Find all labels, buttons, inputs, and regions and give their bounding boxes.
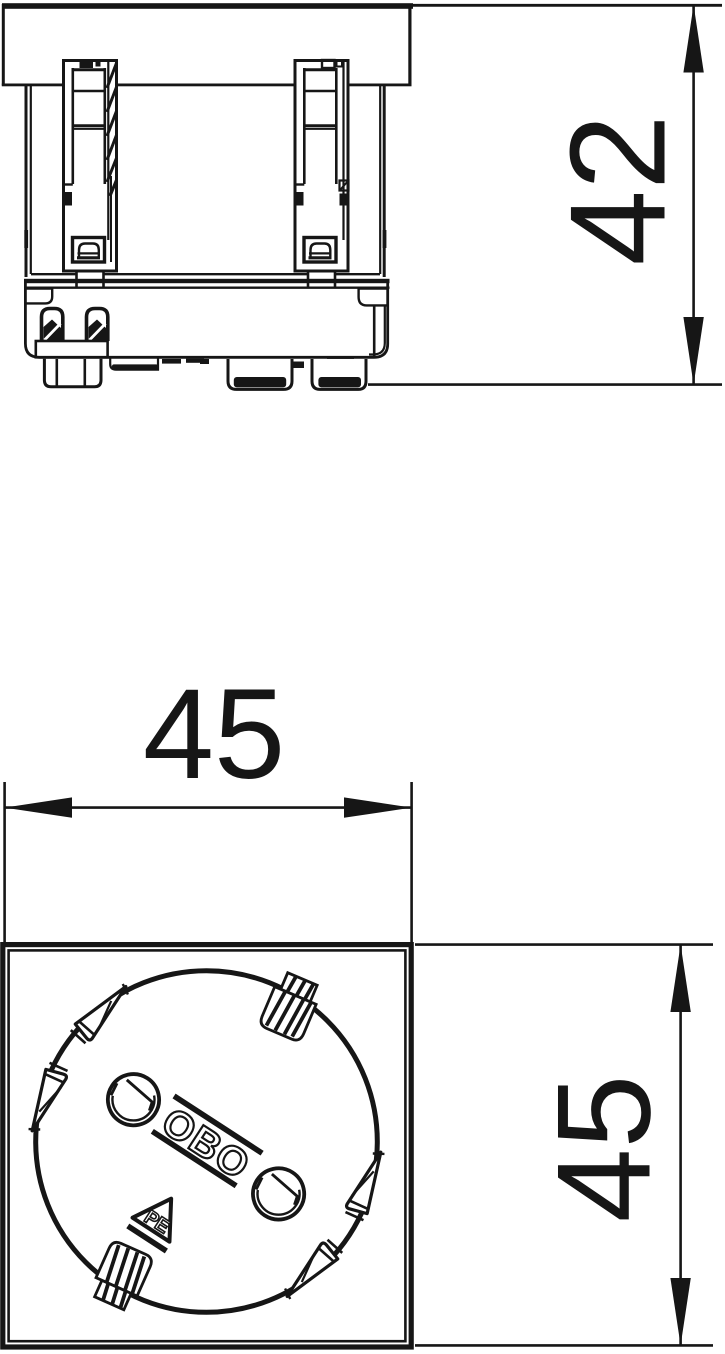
svg-text:OBO: OBO (154, 1100, 258, 1189)
svg-text:45: 45 (143, 663, 285, 806)
svg-text:45: 45 (531, 1075, 679, 1223)
svg-text:42: 42 (542, 114, 694, 265)
